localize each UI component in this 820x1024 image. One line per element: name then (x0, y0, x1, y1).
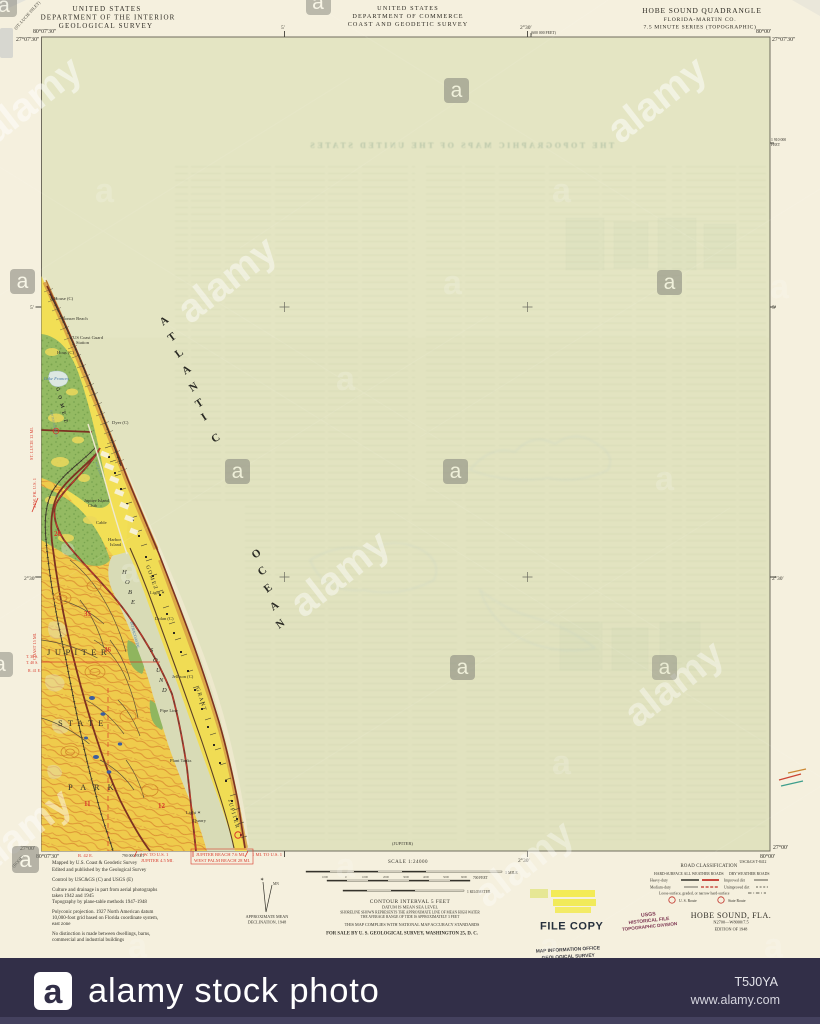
svg-text:Heavy-duty: Heavy-duty (650, 879, 668, 883)
svg-text:DRY WEATHER ROADS: DRY WEATHER ROADS (729, 872, 770, 876)
svg-text:E: E (130, 599, 135, 606)
svg-text:commercial and industrial buil: commercial and industrial buildings (52, 938, 124, 943)
svg-text:DEPARTMENT OF COMMERCE: DEPARTMENT OF COMMERCE (352, 13, 463, 20)
svg-text:26: 26 (54, 530, 62, 538)
svg-text:DATUM IS MEAN SEA LEVEL: DATUM IS MEAN SEA LEVEL (382, 905, 439, 910)
svg-text:3000: 3000 (403, 875, 410, 879)
svg-text:R. 42 E.: R. 42 E. (78, 853, 93, 858)
svg-text:FLORIDA-MARTIN CO.: FLORIDA-MARTIN CO. (664, 17, 737, 23)
svg-text:✶: ✶ (260, 877, 264, 883)
svg-text:a: a (655, 460, 675, 498)
svg-text:JUPITER 4.5 MI.: JUPITER 4.5 MI. (141, 858, 174, 863)
svg-text:Bonser Beach: Bonser Beach (62, 316, 88, 321)
svg-text:a: a (443, 264, 463, 302)
svg-text:2°30′: 2°30′ (520, 24, 532, 31)
svg-text:B: B (128, 589, 132, 596)
svg-text:SEW. PK. U.S. 1: SEW. PK. U.S. 1 (32, 478, 37, 508)
svg-text:FEET: FEET (771, 143, 781, 147)
svg-text:FOR SALE BY U. S. GEOLOGICAL S: FOR SALE BY U. S. GEOLOGICAL SURVEY, WAS… (326, 932, 478, 937)
svg-text:a: a (457, 656, 469, 679)
svg-text:Dyer (C): Dyer (C) (112, 420, 129, 425)
svg-text:a: a (120, 552, 140, 590)
svg-text:(JUPITER): (JUPITER) (392, 841, 413, 846)
svg-text:UNITED STATES: UNITED STATES (72, 5, 141, 13)
svg-text:1 MI. TO U.S. 1: 1 MI. TO U.S. 1 (252, 852, 283, 857)
svg-text:JUPITER BEACH 7.6 MI.: JUPITER BEACH 7.6 MI. (196, 852, 245, 857)
svg-text:80°00′: 80°00′ (760, 853, 775, 860)
svg-text:HOBE SOUND QUADRANGLE: HOBE SOUND QUADRANGLE (642, 6, 762, 15)
svg-text:EDITION OF 1948: EDITION OF 1948 (715, 927, 748, 932)
svg-text:DEPARTMENT OF THE INTERIOR: DEPARTMENT OF THE INTERIOR (41, 14, 176, 22)
svg-text:a: a (232, 460, 244, 483)
svg-text:COAST AND GEODETIC SURVEY: COAST AND GEODETIC SURVEY (348, 21, 469, 28)
svg-text:Control by USC&GS (C) and USGS: Control by USC&GS (C) and USGS (E) (52, 878, 133, 883)
svg-text:SCALE 1:24000: SCALE 1:24000 (388, 860, 428, 865)
svg-text:SHORELINE SHOWN REPRESENTS THE: SHORELINE SHOWN REPRESENTS THE APPROXIMA… (340, 911, 480, 915)
svg-text:Light ✶: Light ✶ (186, 810, 201, 815)
svg-text:O: O (153, 657, 158, 664)
svg-text:Club: Club (88, 503, 98, 508)
svg-text:1000: 1000 (322, 875, 329, 879)
svg-text:east zone: east zone (52, 922, 71, 927)
svg-text:a: a (664, 271, 676, 294)
svg-text:Station: Station (76, 340, 90, 345)
svg-text:27°00′: 27°00′ (773, 844, 788, 851)
svg-text:Hous (C): Hous (C) (57, 350, 74, 355)
svg-text:a: a (451, 79, 463, 102)
svg-text:2 W. TO U.S. 1: 2 W. TO U.S. 1 (140, 852, 169, 857)
svg-text:a: a (552, 172, 572, 210)
svg-text:80°07′30″: 80°07′30″ (33, 28, 57, 35)
svg-text:4000: 4000 (423, 875, 430, 879)
svg-text:a: a (659, 656, 671, 679)
svg-text:T5J0YA: T5J0YA (734, 975, 778, 989)
svg-text:Jellison (C): Jellison (C) (172, 674, 194, 679)
svg-text:P A R K: P A R K (68, 782, 117, 792)
svg-text:N2700—W8000/7.5: N2700—W8000/7.5 (713, 920, 748, 925)
svg-text:(600 000 FEET): (600 000 FEET) (531, 31, 557, 35)
svg-text:12: 12 (158, 802, 166, 810)
svg-text:T. 38 S.: T. 38 S. (26, 654, 38, 659)
svg-text:THIS MAP COMPLIES WITH NATIONA: THIS MAP COMPLIES WITH NATIONAL MAP ACCU… (345, 922, 480, 927)
svg-text:Light ✶: Light ✶ (150, 590, 165, 595)
svg-text:5000: 5000 (443, 875, 450, 879)
svg-text:N: N (158, 677, 164, 684)
svg-text:a: a (312, 0, 324, 14)
svg-text:Topography by plane-table meth: Topography by plane-table methods 1947-1… (52, 900, 147, 905)
svg-text:UNITED STATES: UNITED STATES (377, 5, 439, 12)
svg-text:J U P I T E R: J U P I T E R (47, 647, 108, 657)
svg-text:5′: 5′ (281, 25, 285, 31)
svg-text:Culture and drainage in part f: Culture and drainage in part from aerial… (52, 888, 157, 893)
svg-text:APPROXIMATE MEAN: APPROXIMATE MEAN (246, 914, 289, 919)
svg-text:a: a (552, 744, 572, 782)
svg-text:a: a (95, 172, 115, 210)
svg-text:S T A T E: S T A T E (58, 718, 105, 728)
svg-text:a: a (0, 0, 10, 17)
svg-text:D: D (161, 687, 167, 694)
svg-text:a: a (450, 460, 462, 483)
svg-text:27°07′30″: 27°07′30″ (772, 36, 796, 43)
svg-text:THE TOPOGRAPHIC MAPS OF THE UN: THE TOPOGRAPHIC MAPS OF THE UNITED STATE… (308, 141, 615, 150)
svg-text:MN: MN (273, 882, 279, 886)
svg-text:27°07′30″: 27°07′30″ (16, 36, 40, 43)
svg-text:Mapped by U.S. Coast & Geodeti: Mapped by U.S. Coast & Geodetic Survey (52, 861, 138, 866)
svg-text:Plant Tanks: Plant Tanks (170, 758, 192, 763)
svg-text:GEOLOGICAL SURVEY: GEOLOGICAL SURVEY (59, 22, 153, 30)
svg-text:www.alamy.com: www.alamy.com (690, 993, 780, 1007)
svg-text:Polyconic projection. 1927 Nor: Polyconic projection. 1927 North America… (52, 910, 153, 915)
svg-text:a: a (19, 847, 32, 872)
svg-text:J. House (C): J. House (C) (50, 296, 74, 301)
svg-text:a: a (44, 973, 64, 1011)
svg-text:a: a (336, 360, 356, 398)
svg-text:2000: 2000 (383, 875, 390, 879)
svg-text:HARD-SURFACE ALL WEATHER ROADS: HARD-SURFACE ALL WEATHER ROADS (654, 872, 724, 876)
svg-text:Edited and published by the Ge: Edited and published by the Geological S… (52, 868, 147, 873)
svg-text:alamy stock photo: alamy stock photo (88, 972, 380, 1010)
svg-text:State Route: State Route (728, 899, 746, 903)
svg-text:35: 35 (84, 610, 92, 618)
svg-text:5′: 5′ (30, 305, 34, 311)
svg-text:10,000-foot grid based on Flor: 10,000-foot grid based on Florida coordi… (52, 916, 158, 921)
svg-text:Lake Frances: Lake Frances (43, 376, 69, 381)
svg-text:a: a (770, 268, 790, 306)
svg-text:2°30′: 2°30′ (24, 575, 36, 582)
svg-text:R. 41 E.: R. 41 E. (28, 668, 41, 673)
svg-text:USC&GS T-8412: USC&GS T-8412 (740, 860, 767, 864)
svg-text:a: a (0, 653, 6, 676)
svg-text:80°07′30″: 80°07′30″ (36, 853, 60, 860)
svg-text:a: a (17, 270, 29, 293)
svg-text:Pipe Line: Pipe Line (160, 708, 178, 713)
svg-text:Dolan (C): Dolan (C) (155, 616, 174, 621)
svg-text:ST. LUCIE 12 MI.: ST. LUCIE 12 MI. (29, 427, 34, 460)
svg-text:11: 11 (84, 800, 91, 808)
svg-text:Cable: Cable (96, 520, 107, 525)
svg-text:1 910 000: 1 910 000 (771, 138, 786, 142)
svg-text:7.5 MINUTE SERIES (TOPOGRAPHIC: 7.5 MINUTE SERIES (TOPOGRAPHIC) (644, 24, 757, 31)
svg-text:Quarry: Quarry (193, 818, 207, 823)
svg-text:Unimproved dirt: Unimproved dirt (724, 886, 750, 890)
svg-text:T. 40 S.: T. 40 S. (26, 660, 38, 665)
svg-text:a: a (336, 847, 356, 885)
svg-text:THE AVERAGE RANGE OF TIDE IS A: THE AVERAGE RANGE OF TIDE IS APPROXIMATE… (361, 915, 460, 919)
svg-text:1000: 1000 (362, 875, 369, 879)
svg-text:WEST PALM BEACH 28 MI.: WEST PALM BEACH 28 MI. (194, 858, 250, 863)
svg-text:U. S. Route: U. S. Route (679, 899, 697, 903)
svg-text:80°00′: 80°00′ (756, 28, 771, 35)
svg-text:taken 1942 and 1945: taken 1942 and 1945 (52, 894, 94, 899)
svg-text:6000: 6000 (461, 875, 468, 879)
svg-text:Improved dirt: Improved dirt (724, 879, 746, 883)
svg-text:2°30′: 2°30′ (772, 575, 784, 582)
